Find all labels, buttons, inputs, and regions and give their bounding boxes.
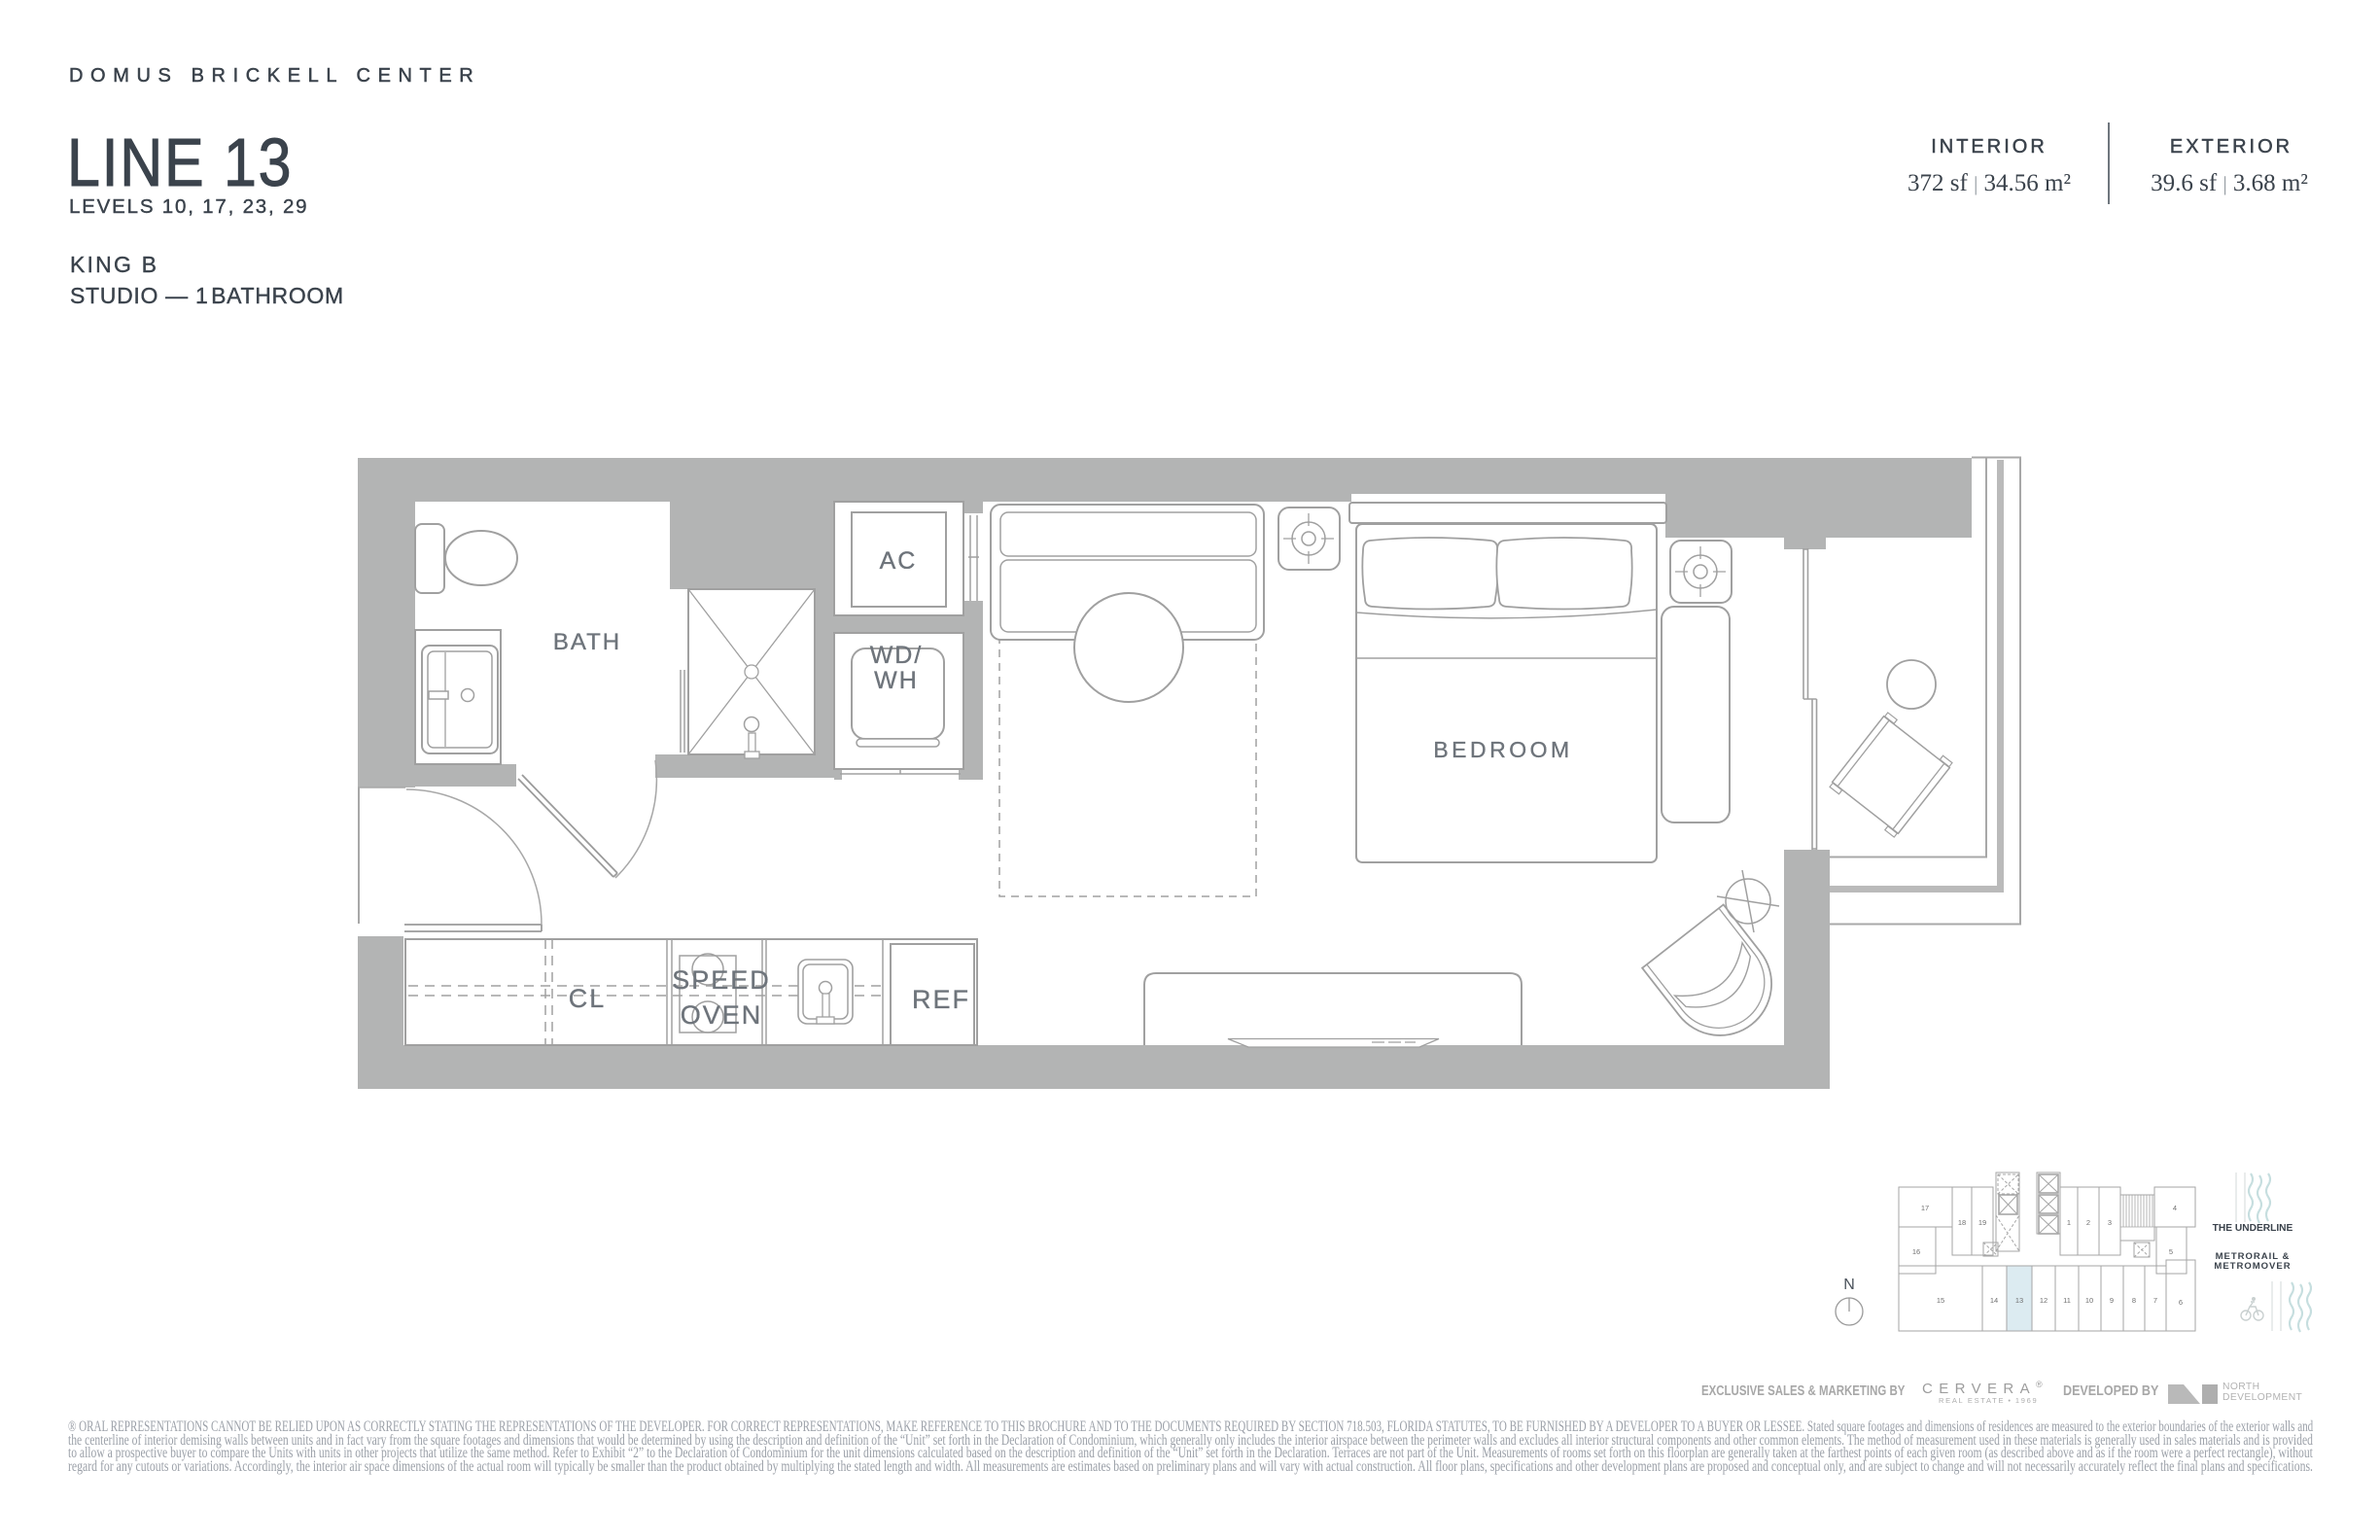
svg-text:5: 5: [2169, 1247, 2173, 1256]
svg-text:18: 18: [1958, 1218, 1966, 1227]
svg-text:17: 17: [1921, 1204, 1929, 1212]
svg-text:19: 19: [1978, 1218, 1986, 1227]
svg-text:2: 2: [2086, 1218, 2090, 1227]
svg-text:8: 8: [2132, 1296, 2136, 1305]
svg-text:1: 1: [2067, 1218, 2071, 1227]
svg-text:3: 3: [2108, 1218, 2112, 1227]
svg-text:6: 6: [2179, 1298, 2183, 1307]
svg-text:11: 11: [2063, 1296, 2071, 1305]
svg-text:4: 4: [2173, 1204, 2177, 1212]
svg-text:14: 14: [1990, 1296, 1998, 1305]
svg-text:15: 15: [1937, 1296, 1944, 1305]
svg-text:13: 13: [2015, 1296, 2023, 1305]
svg-text:9: 9: [2110, 1296, 2114, 1305]
svg-text:12: 12: [2040, 1296, 2047, 1305]
svg-text:10: 10: [2085, 1296, 2093, 1305]
svg-text:7: 7: [2153, 1296, 2157, 1305]
svg-text:16: 16: [1912, 1247, 1920, 1256]
